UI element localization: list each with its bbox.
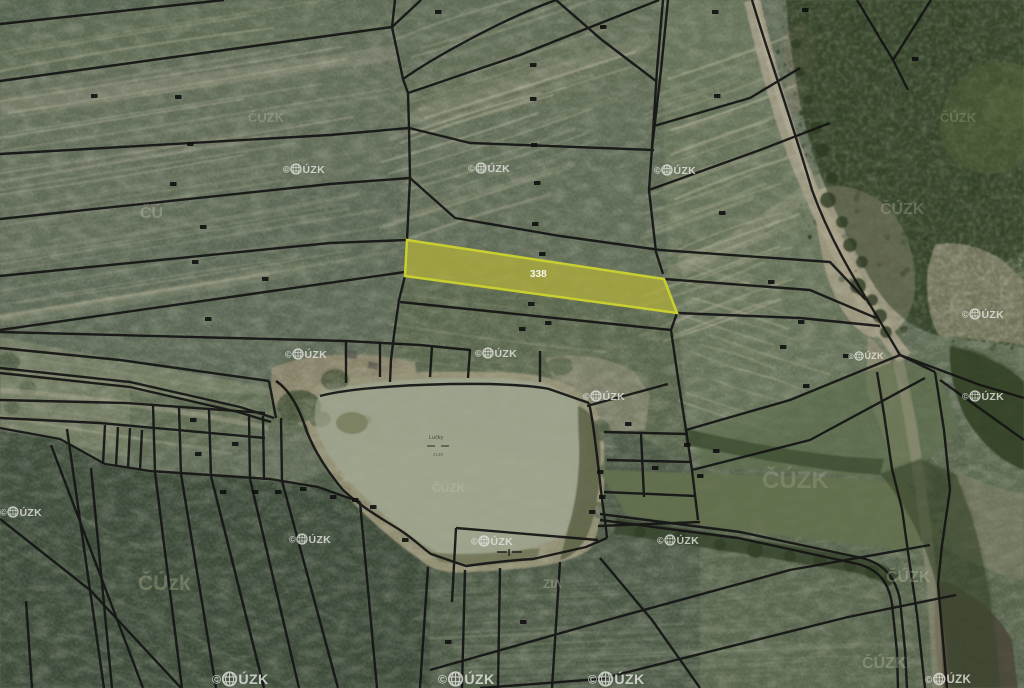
svg-text:ČÚzk: ČÚzk [138, 571, 191, 595]
svg-text:ZΙΛ: ZΙΛ [543, 577, 562, 591]
svg-text:ČÚZK: ČÚZK [762, 466, 829, 494]
svg-text:ČÚZK: ČÚZK [940, 110, 977, 125]
svg-text:338: 338 [530, 269, 547, 280]
svg-text:ČÚZK: ČÚZK [886, 567, 931, 586]
svg-text:Lučky: Lučky [429, 435, 444, 441]
svg-text:ČÚZK: ČÚZK [880, 199, 925, 218]
svg-text:ČÚ: ČÚ [140, 203, 163, 222]
svg-text:ČÚZK: ČÚZK [248, 110, 285, 125]
svg-text:ČÚZK: ČÚZK [432, 480, 466, 495]
svg-text:2149: 2149 [433, 452, 444, 457]
svg-text:ČÚZK: ČÚZK [862, 653, 907, 672]
